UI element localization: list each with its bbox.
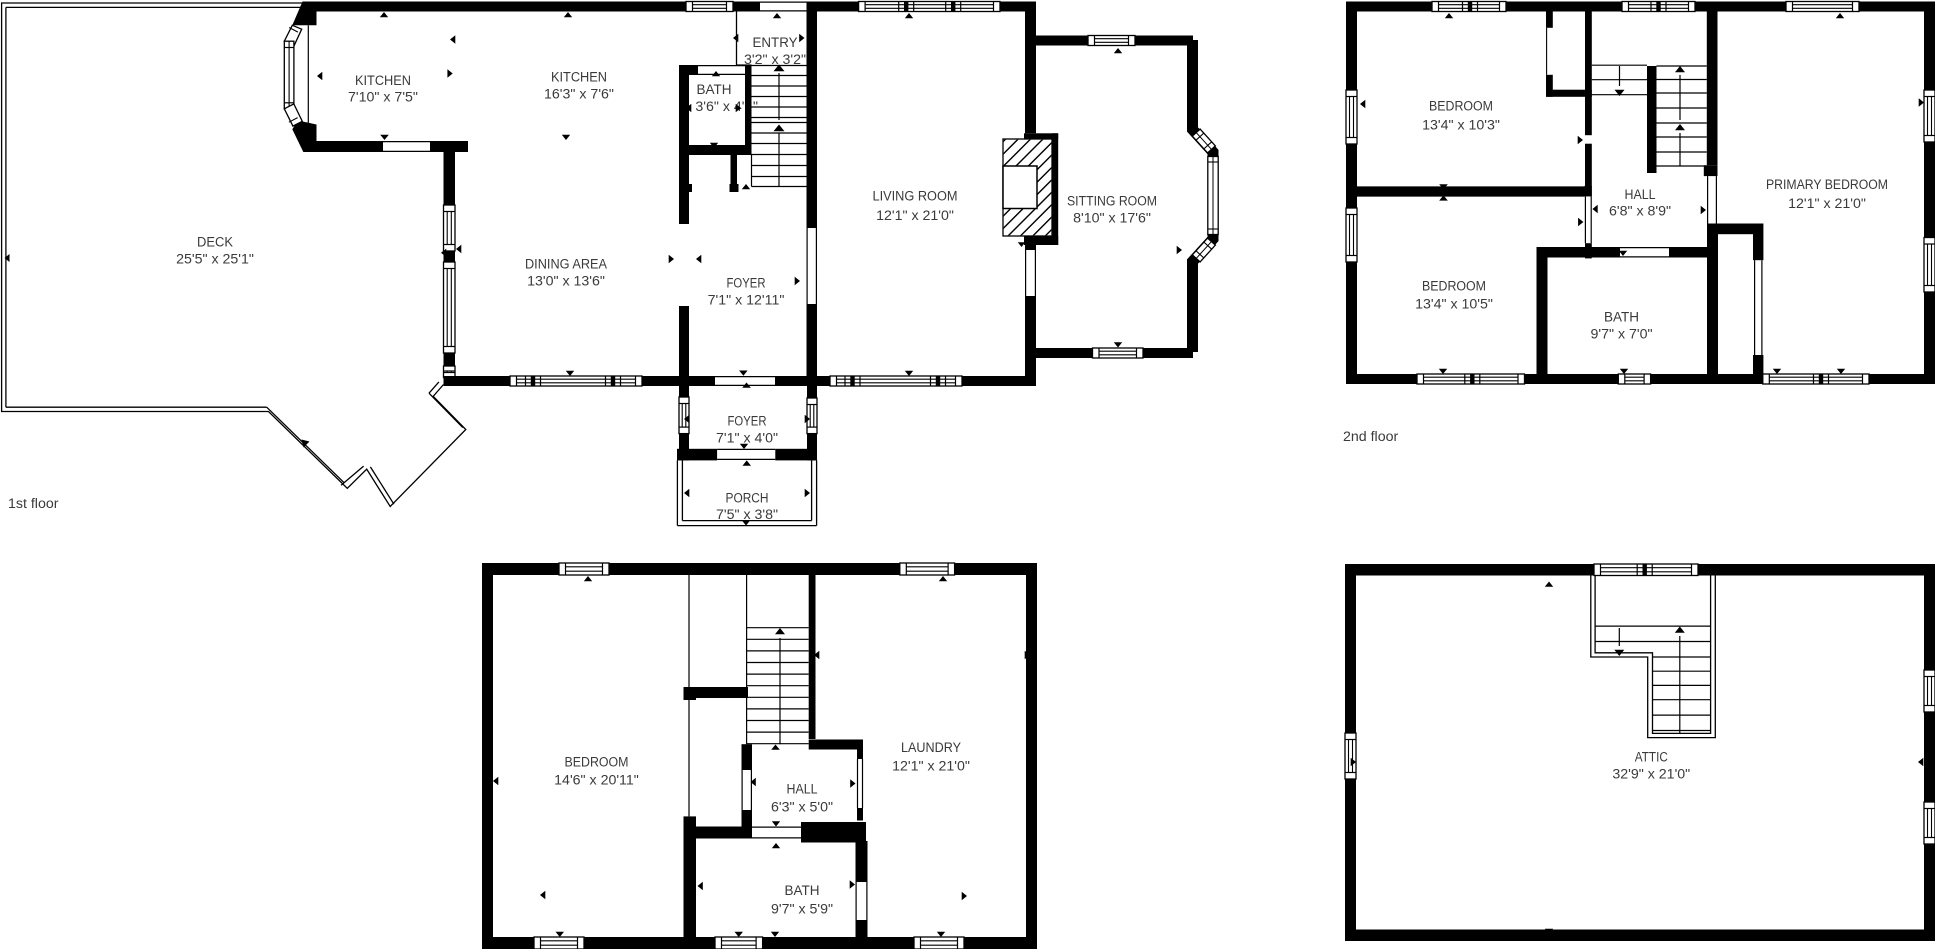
svg-text:8'10" x 17'6": 8'10" x 17'6" bbox=[1073, 211, 1151, 227]
svg-text:PORCH: PORCH bbox=[726, 491, 769, 507]
svg-text:16'3" x 7'6": 16'3" x 7'6" bbox=[544, 87, 614, 103]
svg-text:12'1" x 21'0": 12'1" x 21'0" bbox=[892, 759, 970, 775]
svg-text:HALL: HALL bbox=[787, 782, 818, 798]
svg-text:FOYER: FOYER bbox=[728, 414, 767, 430]
svg-text:1st floor: 1st floor bbox=[8, 496, 59, 512]
svg-text:2nd floor: 2nd floor bbox=[1343, 429, 1398, 445]
svg-text:BEDROOM: BEDROOM bbox=[1422, 279, 1486, 295]
svg-text:KITCHEN: KITCHEN bbox=[551, 70, 607, 86]
svg-text:12'1" x 21'0": 12'1" x 21'0" bbox=[876, 208, 954, 224]
svg-text:12'1" x 21'0": 12'1" x 21'0" bbox=[1788, 196, 1866, 212]
svg-text:7'1" x 12'11": 7'1" x 12'11" bbox=[708, 293, 785, 309]
svg-text:HALL: HALL bbox=[1625, 187, 1656, 203]
svg-text:25'5" x 25'1": 25'5" x 25'1" bbox=[176, 252, 254, 268]
svg-text:14'6" x 20'11": 14'6" x 20'11" bbox=[554, 772, 639, 788]
svg-text:7'10" x 7'5": 7'10" x 7'5" bbox=[348, 90, 418, 106]
svg-text:PRIMARY BEDROOM: PRIMARY BEDROOM bbox=[1766, 177, 1888, 193]
svg-text:9'7" x 7'0": 9'7" x 7'0" bbox=[1590, 326, 1652, 342]
svg-text:3'2" x 3'2": 3'2" x 3'2" bbox=[744, 52, 806, 68]
svg-text:LIVING ROOM: LIVING ROOM bbox=[873, 189, 958, 205]
svg-text:SITTING ROOM: SITTING ROOM bbox=[1067, 194, 1157, 210]
svg-text:13'0" x 13'6": 13'0" x 13'6" bbox=[527, 274, 605, 290]
svg-text:LAUNDRY: LAUNDRY bbox=[901, 740, 961, 756]
svg-text:ATTIC: ATTIC bbox=[1635, 750, 1668, 766]
svg-text:ENTRY: ENTRY bbox=[753, 35, 799, 51]
svg-text:32'9" x 21'0": 32'9" x 21'0" bbox=[1612, 767, 1690, 783]
svg-text:KITCHEN: KITCHEN bbox=[355, 73, 411, 89]
svg-text:BEDROOM: BEDROOM bbox=[565, 754, 629, 770]
svg-text:6'8" x 8'9": 6'8" x 8'9" bbox=[1609, 203, 1671, 219]
svg-text:13'4" x 10'3": 13'4" x 10'3" bbox=[1422, 118, 1500, 134]
svg-text:BATH: BATH bbox=[785, 883, 820, 899]
svg-text:DINING AREA: DINING AREA bbox=[525, 257, 607, 273]
svg-text:FOYER: FOYER bbox=[727, 275, 766, 291]
svg-text:6'3" x 5'0": 6'3" x 5'0" bbox=[771, 800, 833, 816]
svg-text:13'4" x 10'5": 13'4" x 10'5" bbox=[1415, 297, 1493, 313]
svg-text:BATH: BATH bbox=[1604, 309, 1639, 325]
svg-text:BEDROOM: BEDROOM bbox=[1429, 99, 1493, 115]
svg-text:DECK: DECK bbox=[197, 235, 233, 251]
svg-text:BATH: BATH bbox=[697, 82, 732, 98]
svg-text:9'7" x 5'9": 9'7" x 5'9" bbox=[771, 902, 833, 918]
